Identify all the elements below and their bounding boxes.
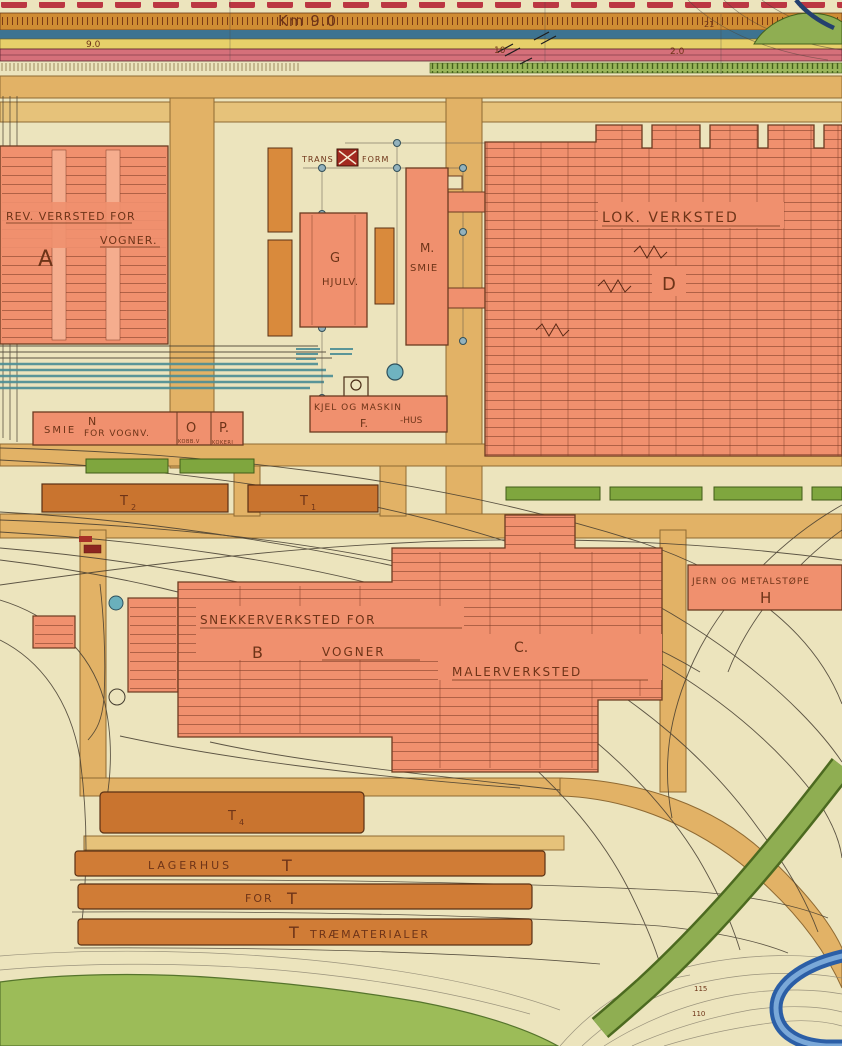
transformer-label-left: TRANS — [301, 155, 334, 164]
building-f-name-line1: KJEL OG MASKIN — [314, 403, 402, 413]
red-marker-large — [84, 545, 101, 553]
building-t2-letter: T — [119, 494, 128, 509]
building-g-letter: G — [330, 251, 340, 266]
teal-dot-marker — [109, 596, 123, 610]
chainage-corner: 21 — [704, 20, 714, 29]
road-top — [0, 76, 842, 98]
building-m-name: SMIE — [410, 263, 438, 274]
storage-strip-lagerhus: LAGERHUS T — [75, 851, 545, 876]
building-o-letter: O — [186, 421, 196, 436]
building-p-letter: P. — [219, 421, 229, 436]
building-m-letter: M. — [420, 241, 434, 255]
workshop-site-plan-map: Km 9.0 9.0 10 2.0 21 — [0, 0, 842, 1046]
building-d-name: LOK. VERKSTED — [602, 210, 739, 226]
storage-strip-trematerialer: T TRÆMATERIALER — [78, 919, 532, 945]
building-b-name-line1: SNEKKERVERKSTED FOR — [200, 613, 376, 627]
building-b-name-line2: VOGNER — [322, 645, 386, 659]
building-c-letter: C. — [514, 640, 528, 656]
building-kjel-maskinhus-f: KJEL OG MASKIN -HUS F. — [310, 377, 447, 432]
red-dash-band — [0, 2, 842, 13]
building-n-letter: N — [88, 415, 96, 428]
storage-strip-for-t: FOR T — [78, 884, 532, 909]
road-vertical-left — [80, 530, 106, 794]
building-f-name-line2: -HUS — [400, 416, 423, 426]
map-canvas: Km 9.0 9.0 10 2.0 21 — [0, 0, 842, 1046]
building-n-name-line1: SMIE — [44, 425, 76, 436]
building-t2: T 2 — [42, 484, 228, 512]
chainage-left: 9.0 — [86, 40, 101, 50]
building-h-letter: H — [760, 589, 771, 607]
building-p-subname: KOKERI — [212, 440, 233, 446]
strip-lagerhus-mark: T — [281, 856, 292, 875]
water-tower-dot — [387, 364, 403, 380]
building-a-name-line1: REV. VERRSTED FOR — [6, 210, 136, 223]
contour-label-115: 115 — [694, 985, 707, 993]
strip-fort-mark: T — [286, 889, 297, 908]
building-b-letter: B — [252, 643, 263, 662]
building-lok-verksted-d: LOK. VERKSTED D — [485, 125, 842, 456]
building-h-name: JERN OG METALSTØPE — [691, 576, 810, 587]
building-t4-sub: 4 — [239, 818, 244, 827]
chainage-right: 2.0 — [670, 47, 685, 57]
building-n-name-line2: FOR VOGNV. — [84, 429, 150, 439]
road-top-2 — [0, 102, 842, 122]
turntable-circle — [109, 689, 125, 705]
green-tick-strip — [430, 63, 842, 73]
road-vertical-center — [446, 98, 482, 532]
building-hjulverksted-g: G HJULV. — [300, 213, 367, 327]
building-stoperi-h: JERN OG METALSTØPE H — [688, 565, 842, 610]
km-label: Km 9.0 — [278, 12, 337, 30]
orange-ruler-band — [0, 13, 842, 30]
chimney-icon — [351, 380, 361, 390]
building-c-name: MALERVERKSTED — [452, 665, 582, 679]
small-shed-west — [33, 616, 75, 648]
red-marker-small — [79, 536, 92, 542]
top-measure-bands: Km 9.0 9.0 10 2.0 21 — [0, 0, 842, 74]
road-vertical-east — [660, 530, 686, 792]
strip-fort-name: FOR — [245, 892, 274, 905]
building-a-letter: A — [38, 247, 53, 272]
yellow-band — [0, 39, 842, 49]
building-g-name: HJULV. — [322, 277, 359, 288]
building-smie-for-vogner-nop: SMIE N FOR VOGNV. O P. KOBB.V KOKERI — [33, 412, 243, 446]
building-o-subname: KOBB.V — [178, 439, 200, 445]
building-d-letter: D — [662, 274, 676, 295]
building-t2-sub: 2 — [131, 503, 136, 512]
chainage-mid: 10 — [494, 46, 506, 56]
building-t4: T 4 — [100, 792, 364, 833]
building-rev-verksted-a: REV. VERRSTED FOR VOGNER. A — [0, 146, 168, 344]
contour-label-110: 110 — [692, 1010, 705, 1018]
transformer-label-right: FORM — [362, 155, 389, 164]
tan-tick-strip — [0, 63, 300, 71]
strip-lagerhus-name: LAGERHUS — [148, 859, 232, 872]
building-snekker-maler-bc: SNEKKERVERKSTED FOR B VOGNER C. MALERVER… — [128, 515, 662, 772]
building-t1-letter: T — [299, 494, 308, 509]
building-f-letter: F. — [360, 417, 368, 430]
building-t4-letter: T — [227, 809, 236, 824]
building-t1: T 1 — [248, 485, 378, 512]
strip-trematerialer-name: TRÆMATERIALER — [309, 928, 430, 941]
building-t1-sub: 1 — [311, 503, 316, 512]
blue-band — [0, 30, 842, 39]
strip-trematerialer-mark: T — [288, 923, 299, 942]
transformer-station: TRANS FORM — [301, 149, 389, 166]
building-a-name-line2: VOGNER. — [100, 234, 157, 247]
